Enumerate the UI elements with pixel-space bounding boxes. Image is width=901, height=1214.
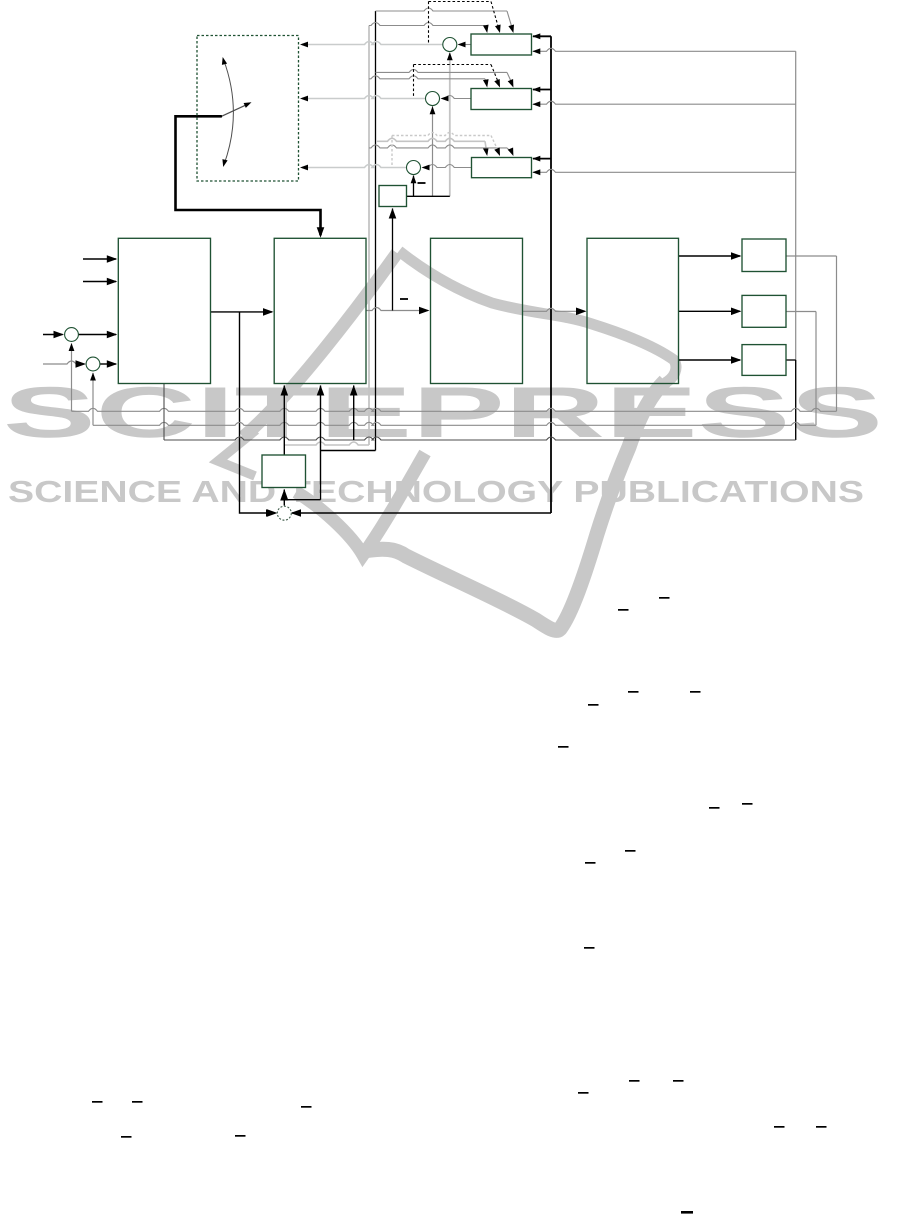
svg-text:SCITEPRESS: SCITEPRESS (3, 373, 883, 453)
svg-text:SCIENCE AND TECHNOLOGY PUBLICA: SCIENCE AND TECHNOLOGY PUBLICATIONS (8, 474, 864, 509)
